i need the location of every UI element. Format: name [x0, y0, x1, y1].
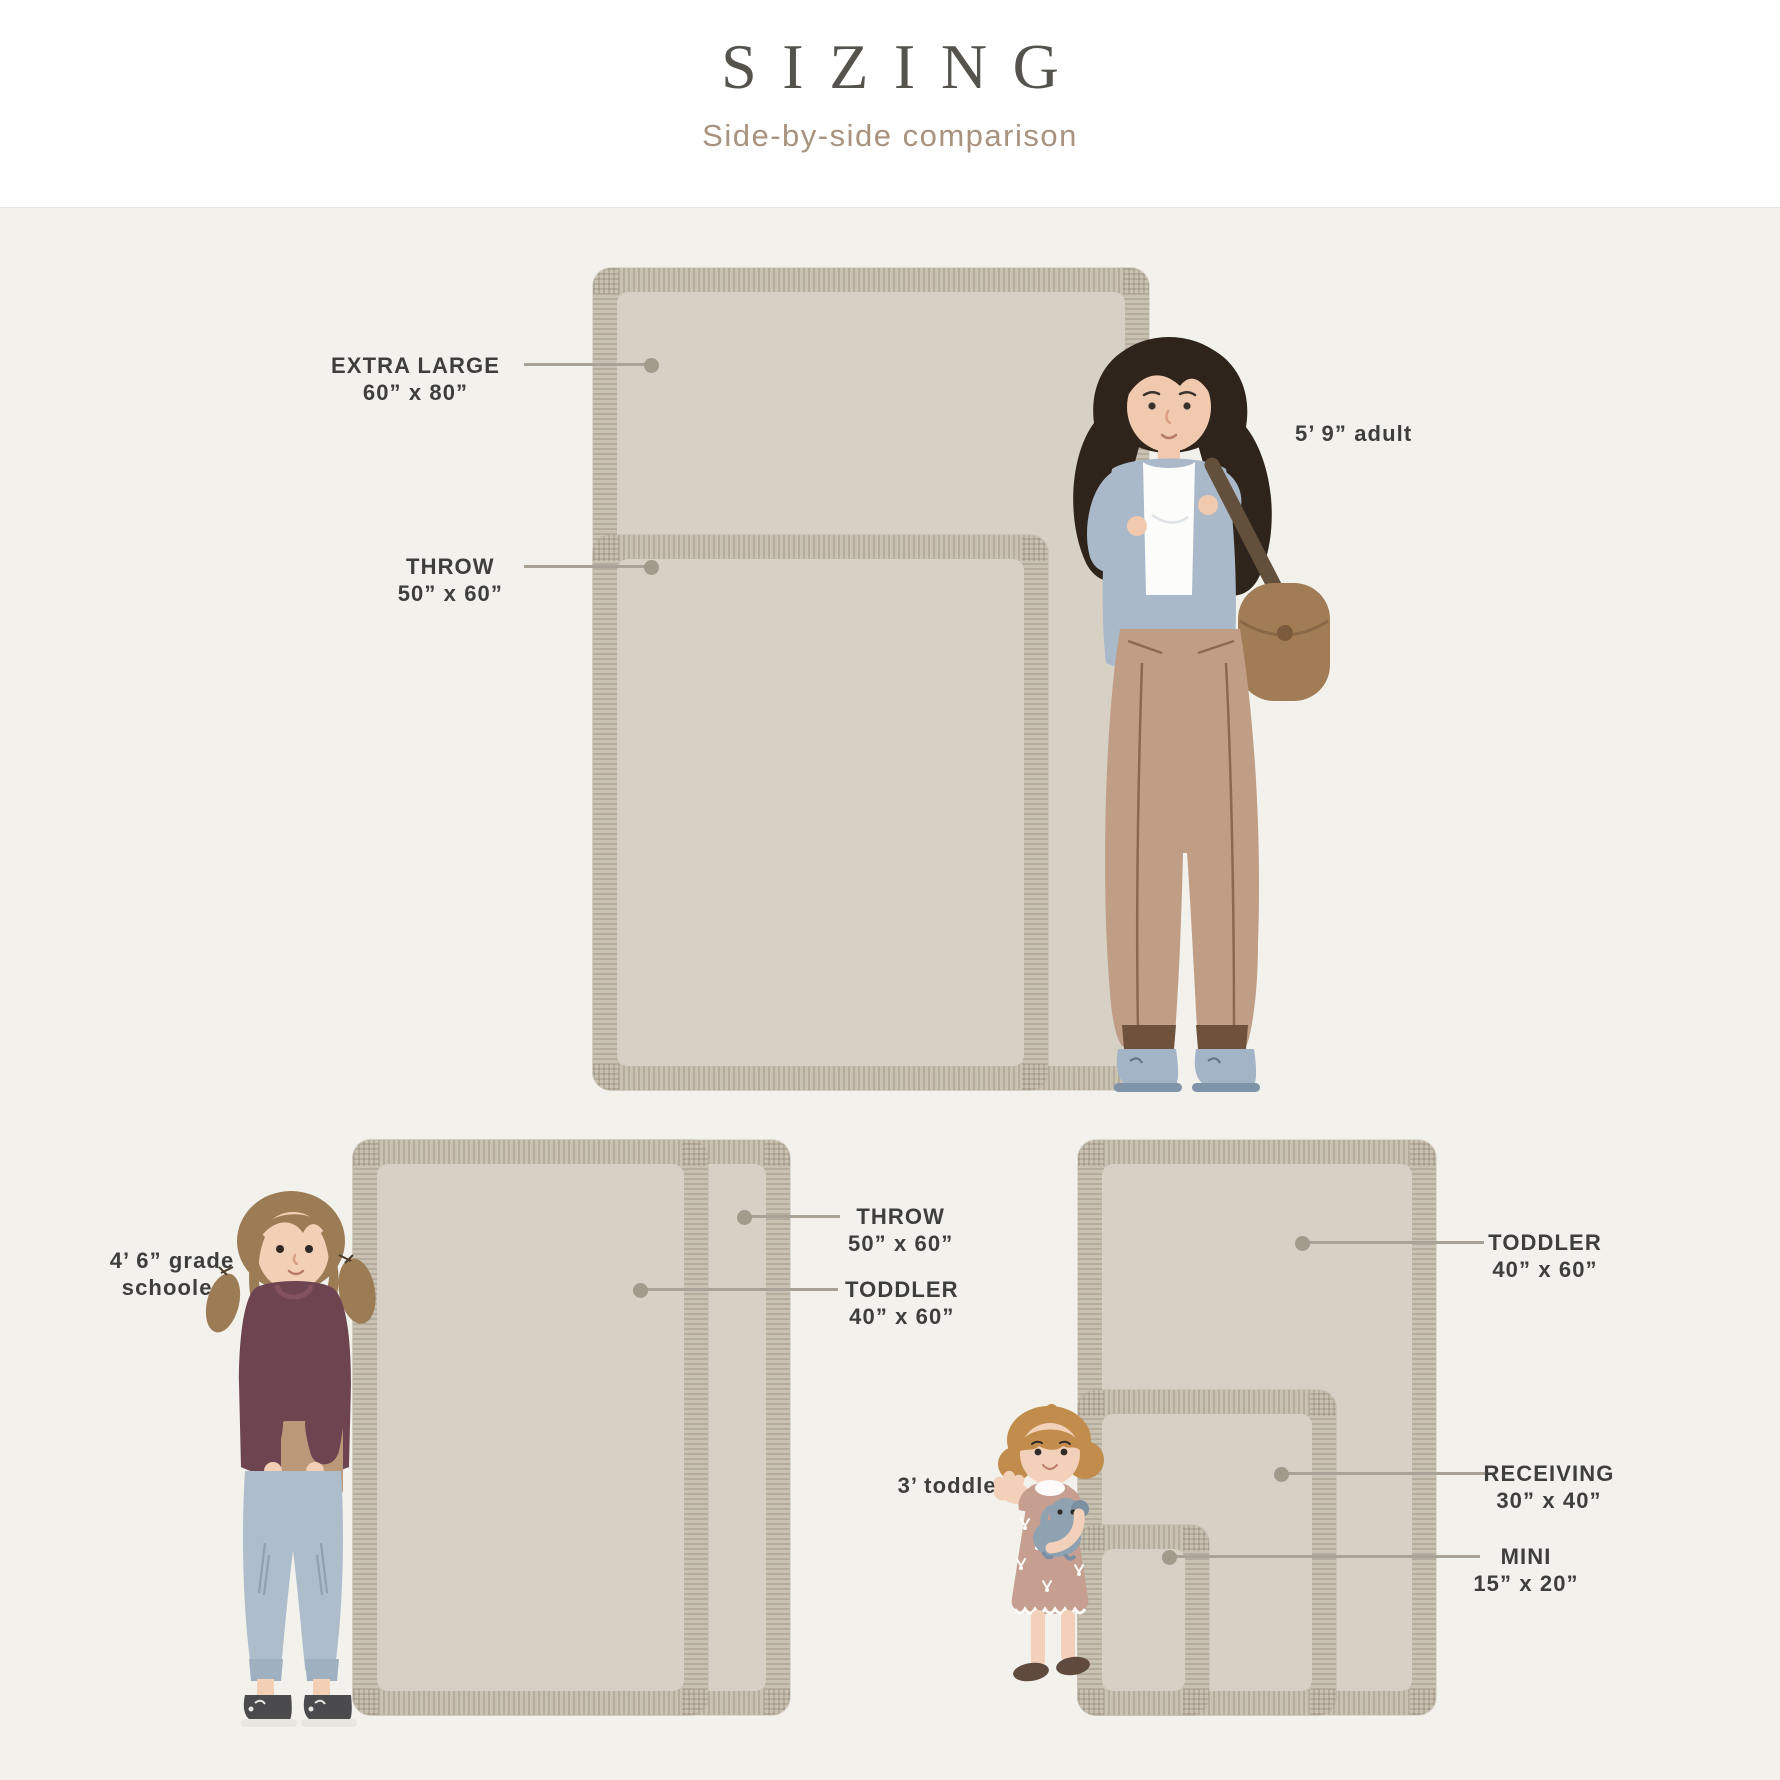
callout-label-throw-top-line2: 50” x 60” [398, 580, 503, 607]
callout-label-throw-bottom-left-line1: THROW [848, 1203, 953, 1230]
leader-line-toddler-bottom-left [640, 1288, 838, 1291]
leader-line-extra-large [524, 363, 651, 366]
callout-label-receiving-line1: RECEIVING [1484, 1460, 1615, 1487]
blanket-surface-throw-top [617, 559, 1024, 1066]
adult-cuff-left [1122, 1025, 1176, 1049]
callout-label-extra-large-line1: EXTRA LARGE [331, 352, 500, 379]
leader-dot-receiving [1274, 1467, 1289, 1482]
callout-label-toddler-bottom-right: TODDLER40” x 60” [1488, 1229, 1602, 1283]
figure-adult [1040, 333, 1340, 1103]
callout-label-mini-line2: 15” x 20” [1473, 1570, 1578, 1597]
adult-right-hand [1198, 495, 1218, 515]
adult-tee [1143, 462, 1195, 595]
blanket-fringe [353, 1689, 708, 1715]
leader-dot-extra-large [644, 358, 659, 373]
blanket-fringe [353, 1140, 708, 1166]
leader-dot-mini [1162, 1550, 1177, 1565]
page-subtitle: Side-by-side comparison [0, 118, 1780, 154]
leader-line-throw-bottom-left [744, 1215, 840, 1218]
blanket-fringe [764, 1140, 790, 1715]
leader-dot-toddler-bottom-left [633, 1283, 648, 1298]
callout-label-throw-bottom-left-line2: 50” x 60” [848, 1230, 953, 1257]
adult-cuff-right [1196, 1025, 1248, 1049]
sizing-diagram: SIZING Side-by-side comparison EXTRA LAR… [0, 0, 1780, 1780]
callout-label-throw-top-line1: THROW [398, 553, 503, 580]
toddler-leg-right [1061, 1610, 1075, 1662]
callout-label-mini: MINI15” x 20” [1473, 1543, 1578, 1597]
callout-label-mini-line1: MINI [1473, 1543, 1578, 1570]
callout-label-extra-large: EXTRA LARGE60” x 80” [331, 352, 500, 406]
blanket-surface-toddler-bottom-left [377, 1164, 684, 1691]
blanket-fringe [593, 535, 619, 1090]
adult-left-hand [1127, 516, 1147, 536]
figure-toddler [985, 1402, 1120, 1682]
blanket-fringe [593, 1064, 1048, 1090]
leader-line-mini [1169, 1555, 1480, 1558]
callout-label-toddler-bottom-left: TODDLER40” x 60” [845, 1276, 959, 1330]
grade-schooler-sneakers [241, 1695, 357, 1727]
adult-pants [1105, 629, 1259, 1047]
callout-label-toddler-bottom-left-line1: TODDLER [845, 1276, 959, 1303]
blanket-fringe [1310, 1390, 1336, 1715]
blanket-fringe [593, 268, 1149, 294]
figure-grade-schooler [205, 1183, 385, 1733]
callout-label-receiving: RECEIVING30” x 40” [1484, 1460, 1615, 1514]
blanket-toddler-bottom-left [353, 1140, 708, 1715]
grade-schooler-cuffs [249, 1659, 339, 1681]
blanket-fringe [593, 535, 1048, 561]
callout-label-toddler-bottom-right-line1: TODDLER [1488, 1229, 1602, 1256]
grade-schooler-jeans [243, 1471, 343, 1679]
toddler-leg-left [1031, 1610, 1045, 1668]
blanket-throw-top [593, 535, 1048, 1090]
page-title: SIZING [0, 30, 1780, 104]
blanket-fringe [1183, 1525, 1209, 1715]
leader-line-receiving [1281, 1472, 1486, 1475]
callout-label-throw-bottom-left: THROW50” x 60” [848, 1203, 953, 1257]
leader-line-toddler-bottom-right [1302, 1241, 1484, 1244]
blanket-fringe [682, 1140, 708, 1715]
callout-label-receiving-line2: 30” x 40” [1484, 1487, 1615, 1514]
blanket-fringe [1078, 1140, 1436, 1166]
leader-dot-throw-top [644, 560, 659, 575]
leader-dot-toddler-bottom-right [1295, 1236, 1310, 1251]
leader-dot-throw-bottom-left [737, 1210, 752, 1225]
adult-shoes [1114, 1049, 1260, 1092]
grade-schooler-ankle-right [313, 1679, 330, 1697]
leader-line-throw-top [524, 565, 651, 568]
callout-label-throw-top: THROW50” x 60” [398, 553, 503, 607]
toddler-collar [1035, 1480, 1065, 1496]
grade-schooler-ankle-left [257, 1679, 274, 1697]
blanket-fringe [1410, 1140, 1436, 1715]
toddler-shoes [1012, 1655, 1091, 1682]
callout-label-toddler-bottom-right-line2: 40” x 60” [1488, 1256, 1602, 1283]
adult-bag [1238, 583, 1330, 701]
callout-label-extra-large-line2: 60” x 80” [331, 379, 500, 406]
callout-label-toddler-bottom-left-line2: 40” x 60” [845, 1303, 959, 1330]
